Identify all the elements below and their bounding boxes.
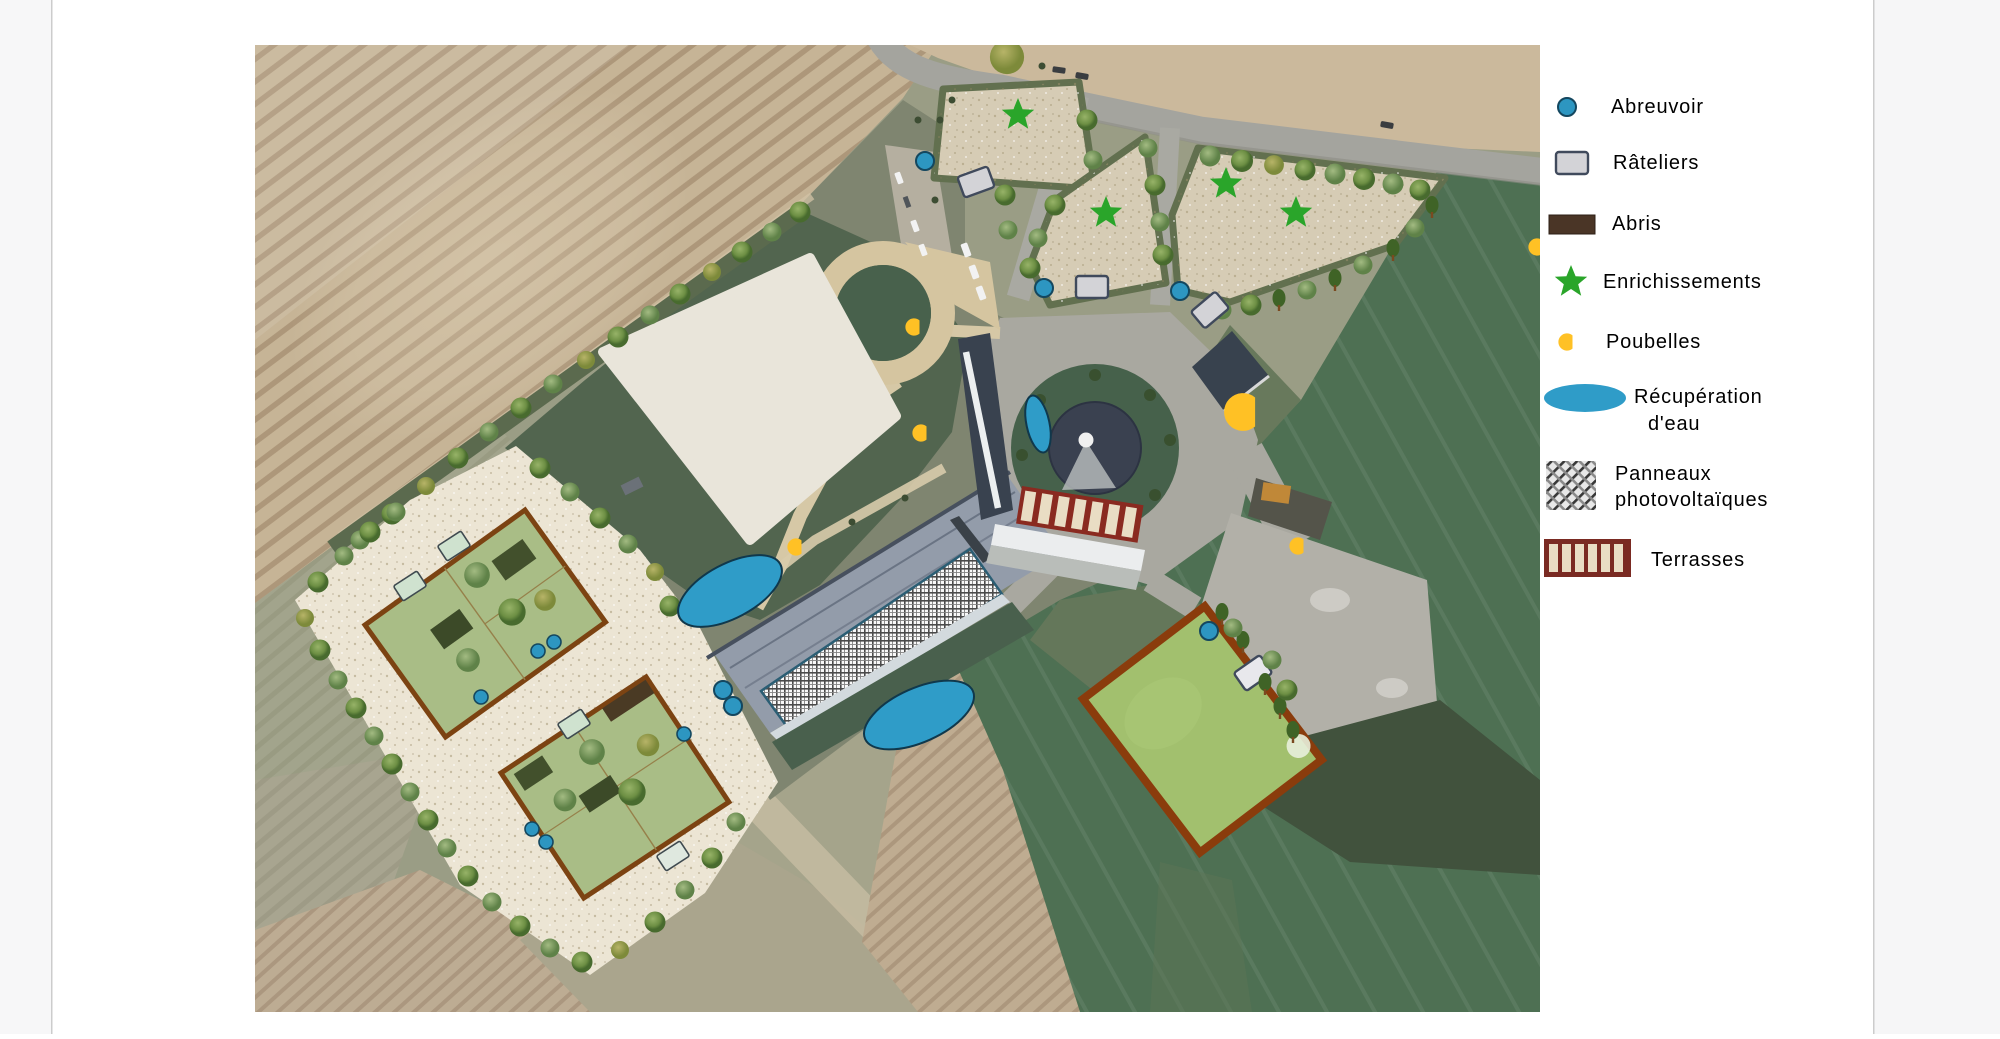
svg-text:d'eau: d'eau bbox=[1648, 413, 1700, 435]
svg-text:Abreuvoir: Abreuvoir bbox=[1611, 96, 1704, 118]
svg-text:Abris: Abris bbox=[1612, 213, 1662, 235]
svg-text:photovoltaïques: photovoltaïques bbox=[1615, 489, 1768, 511]
svg-text:Terrasses: Terrasses bbox=[1651, 549, 1745, 571]
svg-text:Récupération: Récupération bbox=[1634, 386, 1763, 408]
svg-text:Poubelles: Poubelles bbox=[1606, 331, 1701, 353]
svg-text:Enrichissements: Enrichissements bbox=[1603, 271, 1762, 293]
svg-text:Râteliers: Râteliers bbox=[1613, 152, 1699, 174]
svg-text:Panneaux: Panneaux bbox=[1615, 463, 1711, 485]
